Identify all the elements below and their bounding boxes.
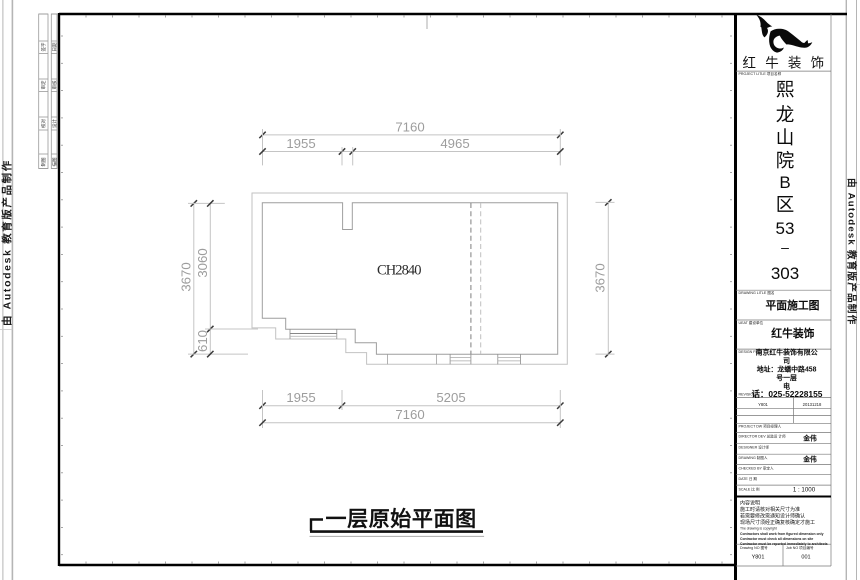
svg-text:001: 001 [801,555,810,561]
svg-text:–: – [781,239,789,255]
svg-text:由 Autodesk 教育版产品制作: 由 Autodesk 教育版产品制作 [1,159,14,326]
svg-text:Contractor must be reported im: Contractor must be reported immediately … [740,542,828,546]
svg-text:303: 303 [771,264,799,283]
svg-text:由 Autodesk 教育版产品制作: 由 Autodesk 教育版产品制作 [846,178,858,325]
svg-text:B: B [779,173,790,192]
svg-text:内容说明: 内容说明 [740,500,760,507]
svg-text:The drawing is copyright: The drawing is copyright [740,527,777,531]
svg-text:描图: 描图 [51,157,58,166]
svg-text:红牛装饰: 红牛装饰 [743,56,834,71]
svg-text:Y801: Y801 [752,555,765,561]
svg-text:施工时请核对相关尺寸为准: 施工时请核对相关尺寸为准 [740,506,800,513]
svg-text:话：025-52228155: 话：025-52228155 [752,389,823,399]
svg-text:7160: 7160 [395,120,424,135]
svg-text:山: 山 [776,127,795,148]
svg-text:Contractor must check all dime: Contractor must check all dimensions on … [740,537,813,541]
svg-text:设计: 设计 [51,119,58,128]
svg-text:53: 53 [776,219,795,238]
svg-text:1955: 1955 [286,390,315,405]
svg-text:7160: 7160 [395,407,424,422]
svg-text:PROJECT LITLE 项目名称: PROJECT LITLE 项目名称 [739,71,782,76]
svg-text:DRAWING LITLE 图名: DRAWING LITLE 图名 [739,290,775,295]
svg-text:制图: 制图 [40,157,47,166]
svg-text:3670: 3670 [593,263,608,292]
svg-text:1 : 1000: 1 : 1000 [793,487,816,494]
svg-text:司: 司 [783,357,790,365]
svg-text:610: 610 [195,330,210,352]
svg-text:地址：龙蟠中路458: 地址：龙蟠中路458 [757,365,817,374]
svg-text:UEAT 建设单位: UEAT 建设单位 [739,320,764,325]
svg-text:龙: 龙 [776,104,795,125]
svg-text:3670: 3670 [179,262,194,291]
svg-text:5205: 5205 [436,390,465,405]
svg-text:一层原始平面图: 一层原始平面图 [326,507,477,531]
svg-text:院: 院 [776,150,795,171]
svg-text:1955: 1955 [286,136,315,151]
svg-text:审核: 审核 [51,80,58,89]
svg-text:CH2840: CH2840 [377,263,422,279]
svg-text:DATE 日 期: DATE 日 期 [739,476,758,481]
svg-text:金伟: 金伟 [802,455,817,464]
svg-text:金伟: 金伟 [802,434,817,443]
svg-text:签字: 签字 [40,42,46,51]
svg-text:DRAWING 制图人: DRAWING 制图人 [739,455,768,460]
svg-text:熙: 熙 [776,79,795,100]
svg-text:区: 区 [776,194,795,215]
svg-text:南京红牛装饰有限公: 南京红牛装饰有限公 [756,348,818,357]
svg-text:SCALE 比 例: SCALE 比 例 [739,486,760,491]
svg-text:DESIGNER 设计师: DESIGNER 设计师 [739,444,770,449]
svg-text:4965: 4965 [440,136,469,151]
svg-text:红牛装饰: 红牛装饰 [771,326,814,340]
svg-text:审定: 审定 [40,80,47,89]
svg-text:Y801: Y801 [758,402,768,407]
svg-text:20131218: 20131218 [803,402,822,407]
svg-text:Contractors shall work from fi: Contractors shall work from figured dime… [740,532,824,536]
svg-text:若需要修改需通知设计师确认: 若需要修改需通知设计师确认 [740,513,805,520]
svg-text:CHECKED BY 审定人: CHECKED BY 审定人 [739,465,774,470]
svg-text:PROJECT DW 项目经理人: PROJECT DW 项目经理人 [739,424,782,429]
svg-text:平面施工图: 平面施工图 [766,298,820,312]
svg-text:号一层: 号一层 [776,373,797,382]
svg-text:现场尺寸须经正确复核确定才施工: 现场尺寸须经正确复核确定才施工 [740,519,815,526]
svg-text:DIRECTOR DEV 总监设 计师: DIRECTOR DEV 总监设 计师 [739,433,786,438]
svg-text:校对: 校对 [40,119,47,128]
svg-text:3060: 3060 [195,248,210,277]
